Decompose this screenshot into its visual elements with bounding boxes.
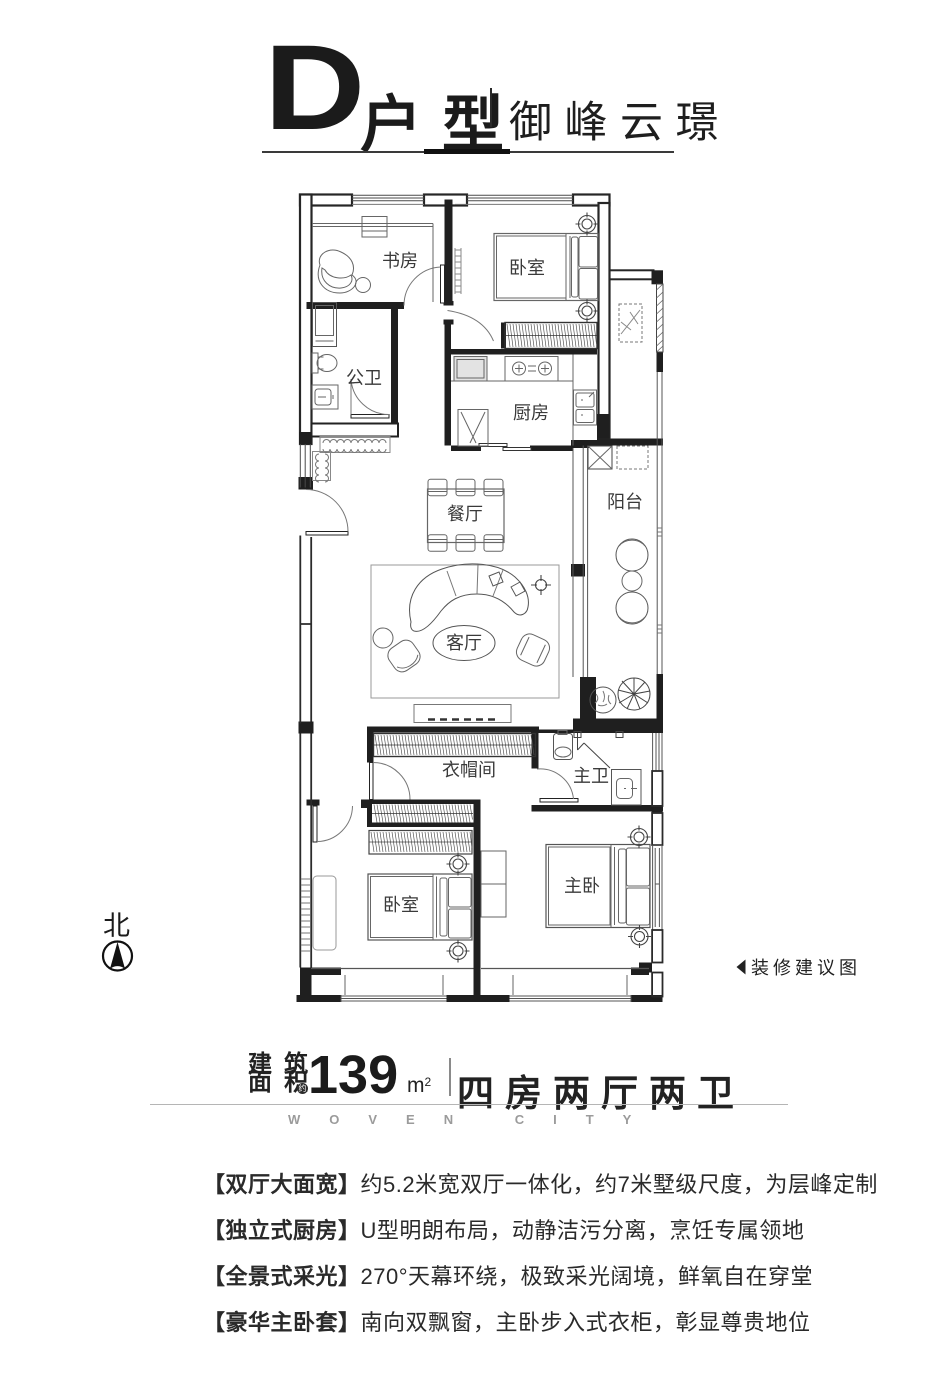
svg-text:餐厅: 餐厅 (447, 504, 483, 524)
svg-text:公卫: 公卫 (346, 368, 382, 388)
svg-text:衣帽间: 衣帽间 (442, 760, 496, 780)
svg-text:卧室: 卧室 (383, 895, 419, 915)
svg-text:书房: 书房 (382, 251, 418, 271)
svg-text:主卧: 主卧 (564, 876, 600, 896)
svg-text:卧室: 卧室 (509, 258, 545, 278)
svg-text:客厅: 客厅 (446, 633, 482, 653)
svg-text:主卫: 主卫 (573, 766, 609, 786)
svg-text:装修建议图: 装修建议图 (751, 958, 861, 978)
svg-text:厨房: 厨房 (513, 403, 549, 423)
svg-text:阳台: 阳台 (607, 492, 643, 512)
svg-text:北: 北 (103, 911, 130, 941)
